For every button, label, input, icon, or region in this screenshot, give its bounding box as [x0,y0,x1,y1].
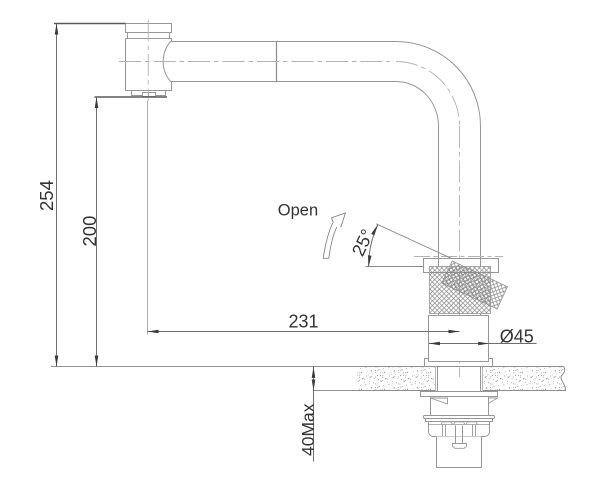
svg-text:254: 254 [36,180,57,211]
svg-text:Ø45: Ø45 [500,326,534,346]
svg-text:231: 231 [289,312,319,332]
svg-text:40Max: 40Max [298,403,318,456]
svg-text:200: 200 [79,216,100,247]
svg-text:Open: Open [278,202,318,220]
